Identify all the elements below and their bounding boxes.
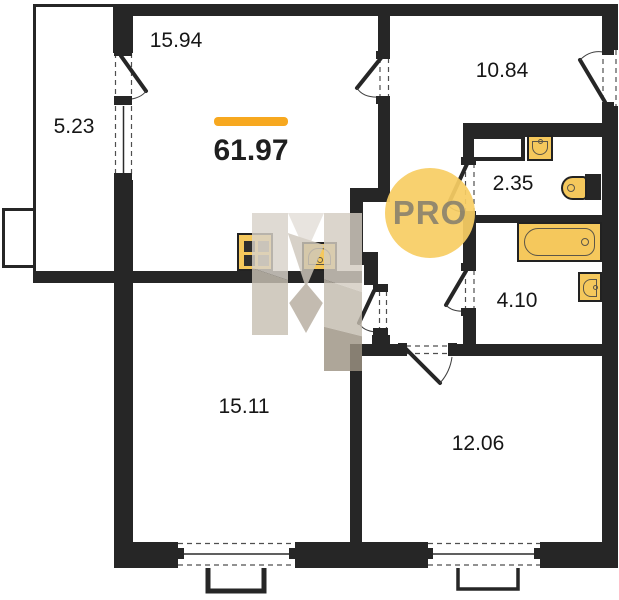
vent-shaft [470, 135, 525, 161]
logo-watermark [252, 213, 362, 371]
exterior-box [2, 208, 36, 268]
room-label-balcony: 5.23 [54, 115, 95, 139]
balcony-wall [33, 4, 36, 273]
wall [602, 4, 618, 50]
wc-sink-icon [527, 135, 553, 161]
room-label-bedroom: 15.11 [219, 395, 270, 419]
wall [378, 100, 390, 188]
room-label-toilet: 2.35 [493, 172, 534, 196]
wall [114, 180, 133, 568]
wall [540, 542, 618, 568]
wall [602, 106, 618, 568]
bathtub-icon [517, 222, 602, 262]
pro-badge-label: PRO [393, 194, 468, 232]
wall [350, 344, 362, 568]
room-label-kitchen-living: 15.94 [150, 29, 203, 53]
room-label-hallway: 10.84 [476, 59, 529, 83]
wall [463, 313, 476, 356]
wall [113, 4, 133, 53]
bath-sink-icon [578, 272, 602, 302]
wall [378, 16, 390, 57]
wall [364, 252, 378, 285]
room-label-bathroom: 4.10 [497, 289, 538, 313]
balcony-wall [33, 4, 113, 7]
toilet-tank [585, 174, 601, 200]
pro-badge: PRO [385, 168, 475, 258]
room-label-bedroom2: 12.06 [452, 432, 505, 456]
floor-plan: PRO 61.97 15.94 5.23 10.84 2.35 4.10 15.… [0, 0, 619, 600]
total-area-value: 61.97 [213, 134, 288, 168]
total-area-accent-bar [214, 117, 288, 126]
toilet-icon [561, 176, 587, 200]
wall [113, 4, 618, 16]
